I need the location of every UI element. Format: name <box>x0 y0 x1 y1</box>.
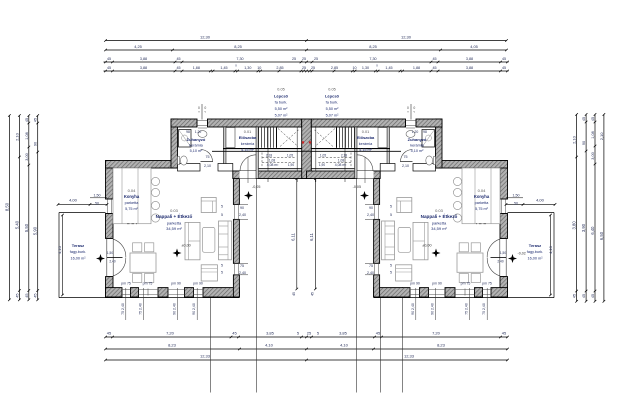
svg-text:2,10: 2,10 <box>204 164 211 168</box>
svg-text:0.05: 0.05 <box>277 88 284 92</box>
svg-text:45: 45 <box>15 293 19 297</box>
svg-text:0.03: 0.03 <box>170 208 179 213</box>
svg-text:1,08: 1,08 <box>591 131 595 138</box>
svg-text:1,08: 1,08 <box>269 158 275 162</box>
svg-text:12,30: 12,30 <box>200 34 211 39</box>
svg-text:16,00 m²: 16,00 m² <box>528 257 544 261</box>
svg-text:1,08: 1,08 <box>25 132 29 139</box>
svg-text:45: 45 <box>502 57 506 61</box>
svg-text:8,25: 8,25 <box>234 44 242 49</box>
svg-text:45: 45 <box>591 117 595 121</box>
svg-text:3,85: 3,85 <box>266 331 275 336</box>
svg-text:75: 75 <box>404 155 408 159</box>
svg-text:6,50: 6,50 <box>599 231 604 240</box>
svg-text:Lépcső: Lépcső <box>325 93 340 98</box>
svg-text:25: 25 <box>302 66 306 70</box>
svg-text:90: 90 <box>582 141 586 145</box>
svg-text:90 2,40: 90 2,40 <box>411 303 415 315</box>
svg-text:45: 45 <box>107 331 112 336</box>
svg-text:4,10: 4,10 <box>548 245 553 254</box>
svg-text:kerámia: kerámia <box>410 144 424 148</box>
svg-text:6,40: 6,40 <box>590 226 595 235</box>
svg-text:45: 45 <box>582 294 586 298</box>
svg-text:45: 45 <box>176 66 180 70</box>
svg-text:45: 45 <box>582 117 586 121</box>
svg-text:5: 5 <box>221 264 223 268</box>
svg-text:1,45: 1,45 <box>220 66 227 70</box>
svg-text:1,88: 1,88 <box>413 66 420 70</box>
svg-text:7,30: 7,30 <box>369 57 376 61</box>
svg-text:1,88: 1,88 <box>193 66 200 70</box>
svg-text:5: 5 <box>221 271 223 275</box>
svg-text:2,40: 2,40 <box>239 271 246 275</box>
svg-text:2,40: 2,40 <box>367 271 374 275</box>
svg-text:75 2,40: 75 2,40 <box>121 303 125 315</box>
svg-text:2,18: 2,18 <box>266 153 272 157</box>
svg-text:45: 45 <box>573 294 577 298</box>
svg-text:0.04: 0.04 <box>128 188 137 193</box>
svg-text:45: 45 <box>502 66 506 70</box>
svg-text:2,10: 2,10 <box>599 132 604 141</box>
svg-text:6,11: 6,11 <box>309 232 314 241</box>
svg-text:Zuhanyzó: Zuhanyzó <box>187 137 206 142</box>
svg-text:90 2,40: 90 2,40 <box>431 303 435 315</box>
svg-text:2,10: 2,10 <box>14 132 19 141</box>
svg-text:75: 75 <box>369 264 373 268</box>
svg-text:12,33: 12,33 <box>404 354 415 359</box>
svg-text:5,50 m²: 5,50 m² <box>326 107 340 111</box>
svg-text:1,90: 1,90 <box>288 163 294 167</box>
svg-text:3,80: 3,80 <box>572 221 577 230</box>
svg-text:1,30: 1,30 <box>244 66 251 70</box>
svg-text:Előszoba: Előszoba <box>239 135 257 140</box>
svg-text:pm 75: pm 75 <box>461 281 471 285</box>
svg-text:7,30: 7,30 <box>236 57 243 61</box>
svg-text:parketta: parketta <box>167 220 182 225</box>
svg-text:25: 25 <box>311 66 315 70</box>
svg-text:4,15 m²: 4,15 m² <box>359 148 373 152</box>
svg-text:7,20: 7,20 <box>432 331 441 336</box>
svg-text:45: 45 <box>232 331 237 336</box>
svg-text:5,10 m²: 5,10 m² <box>190 149 204 153</box>
svg-text:Nappali + Étkező: Nappali + Étkező <box>421 212 458 219</box>
svg-text:Nappali + Étkező: Nappali + Étkező <box>156 212 193 219</box>
svg-text:fagy.burk.: fagy.burk. <box>70 250 86 254</box>
svg-text:pm 75: pm 75 <box>482 281 492 285</box>
svg-text:10: 10 <box>257 66 261 70</box>
svg-text:3,88: 3,88 <box>466 57 473 61</box>
svg-text:90 2,40: 90 2,40 <box>192 303 196 315</box>
svg-text:2,18: 2,18 <box>341 153 347 157</box>
svg-text:fa burk.: fa burk. <box>275 101 288 105</box>
svg-text:4,08 m²: 4,08 m² <box>335 163 347 167</box>
svg-text:16,00 m²: 16,00 m² <box>71 257 87 261</box>
svg-text:3,88: 3,88 <box>466 66 473 70</box>
svg-text:Konyha: Konyha <box>474 194 490 199</box>
svg-text:5: 5 <box>221 205 223 209</box>
svg-text:pm 90: pm 90 <box>171 281 181 285</box>
svg-text:75: 75 <box>240 264 244 268</box>
svg-text:3,88: 3,88 <box>140 57 147 61</box>
svg-text:4,00: 4,00 <box>536 198 545 203</box>
svg-text:98: 98 <box>423 130 427 134</box>
svg-text:kerámia: kerámia <box>189 144 203 148</box>
svg-text:-0,05: -0,05 <box>353 185 361 189</box>
svg-text:±0,00: ±0,00 <box>422 244 431 248</box>
svg-text:12,33: 12,33 <box>200 354 211 359</box>
svg-text:50: 50 <box>95 202 99 206</box>
svg-text:pm 90: pm 90 <box>193 281 203 285</box>
svg-text:45: 45 <box>176 57 180 61</box>
svg-text:1,05: 1,05 <box>320 153 326 157</box>
svg-text:2,40: 2,40 <box>109 259 115 263</box>
svg-text:1,05: 1,05 <box>287 153 293 157</box>
svg-text:pm 90: pm 90 <box>432 281 442 285</box>
svg-text:25: 25 <box>302 57 306 61</box>
svg-text:4,15 m²: 4,15 m² <box>241 148 255 152</box>
svg-text:Zuhanyzó: Zuhanyzó <box>408 137 427 142</box>
svg-text:10: 10 <box>352 66 356 70</box>
svg-text:5,10 m²: 5,10 m² <box>411 149 425 153</box>
svg-text:0.03: 0.03 <box>435 208 444 213</box>
svg-text:45: 45 <box>432 66 436 70</box>
svg-text:75 2,40: 75 2,40 <box>138 303 142 315</box>
svg-text:5,07 m²: 5,07 m² <box>326 113 340 117</box>
svg-text:0.01: 0.01 <box>244 130 251 134</box>
svg-text:fagy.burk.: fagy.burk. <box>527 250 543 254</box>
svg-text:2,40: 2,40 <box>497 259 503 263</box>
svg-text:4,10: 4,10 <box>265 343 274 348</box>
svg-text:45: 45 <box>107 66 111 70</box>
svg-text:75 2,40: 75 2,40 <box>482 303 486 315</box>
svg-text:75 2,40: 75 2,40 <box>465 303 469 315</box>
svg-text:45: 45 <box>502 331 507 336</box>
svg-text:45: 45 <box>34 293 38 297</box>
svg-text:45: 45 <box>432 57 436 61</box>
svg-text:1,50: 1,50 <box>500 251 506 255</box>
svg-text:1,20: 1,20 <box>412 130 419 134</box>
svg-text:5,07 m²: 5,07 m² <box>275 113 289 117</box>
svg-text:8,23: 8,23 <box>437 343 446 348</box>
svg-text:34,59 m²: 34,59 m² <box>166 226 182 231</box>
svg-text:3,90: 3,90 <box>581 223 586 232</box>
svg-text:-0,05: -0,05 <box>252 185 260 189</box>
svg-text:5: 5 <box>390 271 392 275</box>
svg-text:2,85: 2,85 <box>331 66 338 70</box>
svg-text:2,40: 2,40 <box>367 213 374 217</box>
svg-text:pm 75: pm 75 <box>143 281 153 285</box>
svg-text:12,30: 12,30 <box>401 34 412 39</box>
svg-text:fa burk.: fa burk. <box>326 101 339 105</box>
svg-text:45: 45 <box>25 118 29 122</box>
svg-text:5,50 m²: 5,50 m² <box>275 107 289 111</box>
svg-text:Terasz: Terasz <box>529 243 541 248</box>
svg-text:7,20: 7,20 <box>166 331 175 336</box>
svg-text:5,75 m²: 5,75 m² <box>475 207 489 211</box>
svg-text:8,50: 8,50 <box>4 202 9 211</box>
svg-text:5: 5 <box>390 264 392 268</box>
svg-text:6,11: 6,11 <box>291 232 296 241</box>
svg-text:5: 5 <box>390 213 392 217</box>
svg-text:Előszoba: Előszoba <box>357 135 375 140</box>
svg-text:2,10: 2,10 <box>572 135 577 144</box>
svg-text:parketta: parketta <box>475 201 490 205</box>
svg-text:5: 5 <box>221 213 223 217</box>
svg-text:3,85: 3,85 <box>339 331 348 336</box>
svg-text:75: 75 <box>206 155 210 159</box>
svg-text:45: 45 <box>591 294 595 298</box>
svg-text:0.04: 0.04 <box>478 188 487 193</box>
svg-text:0.05: 0.05 <box>328 88 335 92</box>
svg-text:34,59 m²: 34,59 m² <box>431 226 447 231</box>
svg-text:2,85: 2,85 <box>276 66 283 70</box>
svg-text:1,50: 1,50 <box>94 193 101 197</box>
svg-text:Konyha: Konyha <box>124 194 140 199</box>
svg-text:45: 45 <box>25 293 29 297</box>
svg-text:90: 90 <box>369 206 373 210</box>
svg-text:parketta: parketta <box>125 201 140 205</box>
svg-text:parketta: parketta <box>432 220 447 225</box>
svg-text:50: 50 <box>514 202 518 206</box>
svg-text:5: 5 <box>390 205 392 209</box>
svg-text:2,10: 2,10 <box>402 164 409 168</box>
svg-text:90: 90 <box>240 206 244 210</box>
svg-text:5,40: 5,40 <box>14 220 19 229</box>
svg-text:1,30: 1,30 <box>362 66 369 70</box>
svg-text:8,23: 8,23 <box>168 343 177 348</box>
svg-text:1,50: 1,50 <box>513 193 520 197</box>
svg-text:8,25: 8,25 <box>369 44 377 49</box>
svg-text:1,45: 1,45 <box>385 66 392 70</box>
svg-text:1,90: 1,90 <box>319 163 325 167</box>
svg-text:25: 25 <box>314 57 318 61</box>
svg-text:4,10: 4,10 <box>340 343 349 348</box>
svg-text:pm 75: pm 75 <box>121 281 131 285</box>
svg-text:98: 98 <box>186 130 190 134</box>
svg-text:4,00: 4,00 <box>69 198 78 203</box>
svg-text:5,75 m²: 5,75 m² <box>125 207 139 211</box>
svg-text:Lépcső: Lépcső <box>274 93 289 98</box>
svg-text:1,08: 1,08 <box>338 158 344 162</box>
svg-text:3,00: 3,00 <box>591 152 595 159</box>
svg-text:25: 25 <box>292 57 296 61</box>
svg-text:45: 45 <box>34 118 38 122</box>
svg-text:5,50: 5,50 <box>24 223 29 232</box>
svg-text:2,40: 2,40 <box>239 213 246 217</box>
svg-text:4,05: 4,05 <box>470 44 478 49</box>
svg-text:kerámia: kerámia <box>359 142 373 146</box>
svg-text:pm 90: pm 90 <box>410 281 420 285</box>
svg-text:3,88: 3,88 <box>140 66 147 70</box>
svg-text:-0,02: -0,02 <box>518 252 526 256</box>
svg-text:1,50: 1,50 <box>107 251 113 255</box>
svg-text:5,90: 5,90 <box>33 226 38 235</box>
svg-text:90: 90 <box>34 142 38 146</box>
svg-text:4,25: 4,25 <box>134 44 142 49</box>
svg-text:Terasz: Terasz <box>72 243 84 248</box>
svg-text:45: 45 <box>311 292 315 296</box>
svg-text:4,10: 4,10 <box>57 245 62 254</box>
svg-text:±0,00: ±0,00 <box>182 244 191 248</box>
svg-text:4,08 m²: 4,08 m² <box>267 163 279 167</box>
svg-text:0.01: 0.01 <box>362 130 369 134</box>
svg-text:3,00: 3,00 <box>25 153 29 160</box>
svg-text:kerámia: kerámia <box>241 142 255 146</box>
svg-text:90 2,40: 90 2,40 <box>172 303 176 315</box>
svg-text:1,20: 1,20 <box>195 130 202 134</box>
svg-text:25: 25 <box>307 331 312 336</box>
svg-text:45: 45 <box>107 57 111 61</box>
svg-text:45: 45 <box>292 292 296 296</box>
